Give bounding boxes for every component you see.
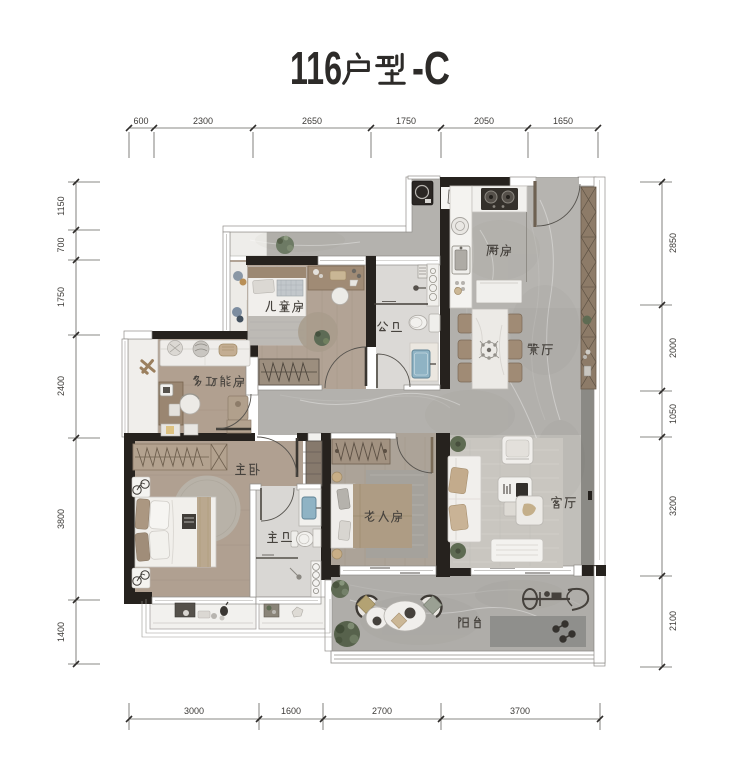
svg-text:2400: 2400: [56, 376, 66, 396]
svg-text:2050: 2050: [474, 116, 494, 126]
svg-text:2650: 2650: [302, 116, 322, 126]
svg-text:3200: 3200: [668, 496, 678, 516]
svg-text:1750: 1750: [396, 116, 416, 126]
svg-text:1050: 1050: [668, 404, 678, 424]
svg-text:3000: 3000: [184, 706, 204, 716]
svg-text:1750: 1750: [56, 287, 66, 307]
svg-text:1400: 1400: [56, 622, 66, 642]
svg-text:2700: 2700: [372, 706, 392, 716]
svg-text:600: 600: [133, 116, 148, 126]
svg-text:116: 116: [290, 42, 342, 94]
svg-text:2850: 2850: [668, 233, 678, 253]
svg-text:3700: 3700: [510, 706, 530, 716]
svg-text:1650: 1650: [553, 116, 573, 126]
svg-text:-C: -C: [412, 42, 450, 94]
svg-text:1600: 1600: [281, 706, 301, 716]
svg-text:2000: 2000: [668, 338, 678, 358]
svg-text:2300: 2300: [193, 116, 213, 126]
svg-text:1150: 1150: [56, 196, 66, 215]
svg-text:700: 700: [56, 237, 66, 252]
svg-text:3800: 3800: [56, 509, 66, 529]
svg-text:2100: 2100: [668, 611, 678, 631]
